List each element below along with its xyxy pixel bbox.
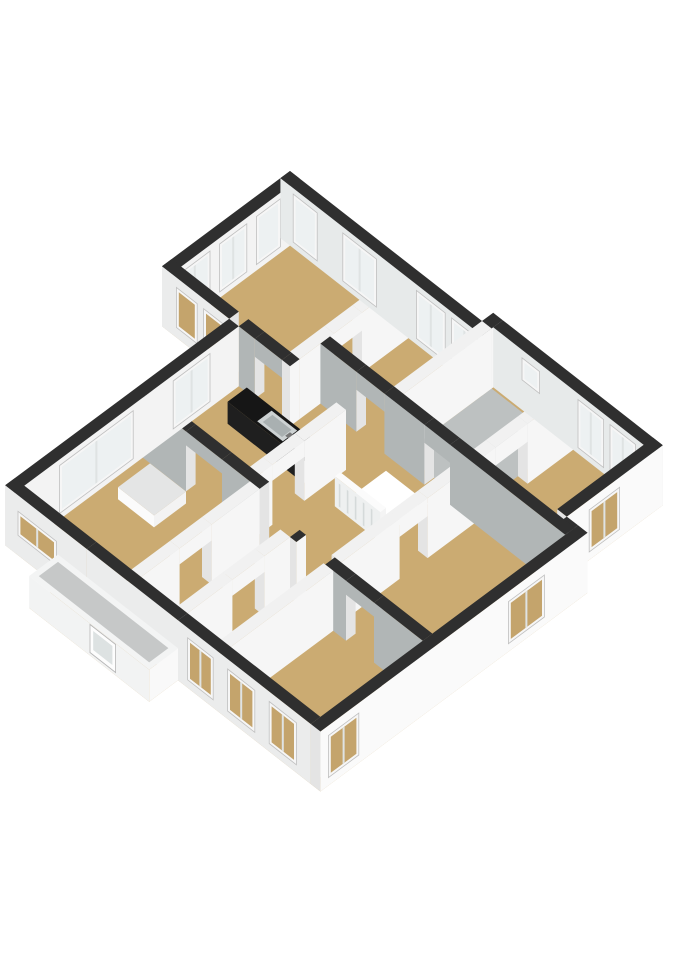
- floorplan-image: 3D floor plan - first floor: [0, 0, 679, 960]
- wall-wing-south-b: [282, 353, 300, 426]
- floorplan-3d-view: [0, 0, 679, 960]
- railing-baluster-3: [355, 496, 357, 520]
- railing-baluster-2: [347, 490, 349, 514]
- railing-baluster-4: [363, 502, 365, 526]
- railing-baluster-1: [339, 484, 341, 508]
